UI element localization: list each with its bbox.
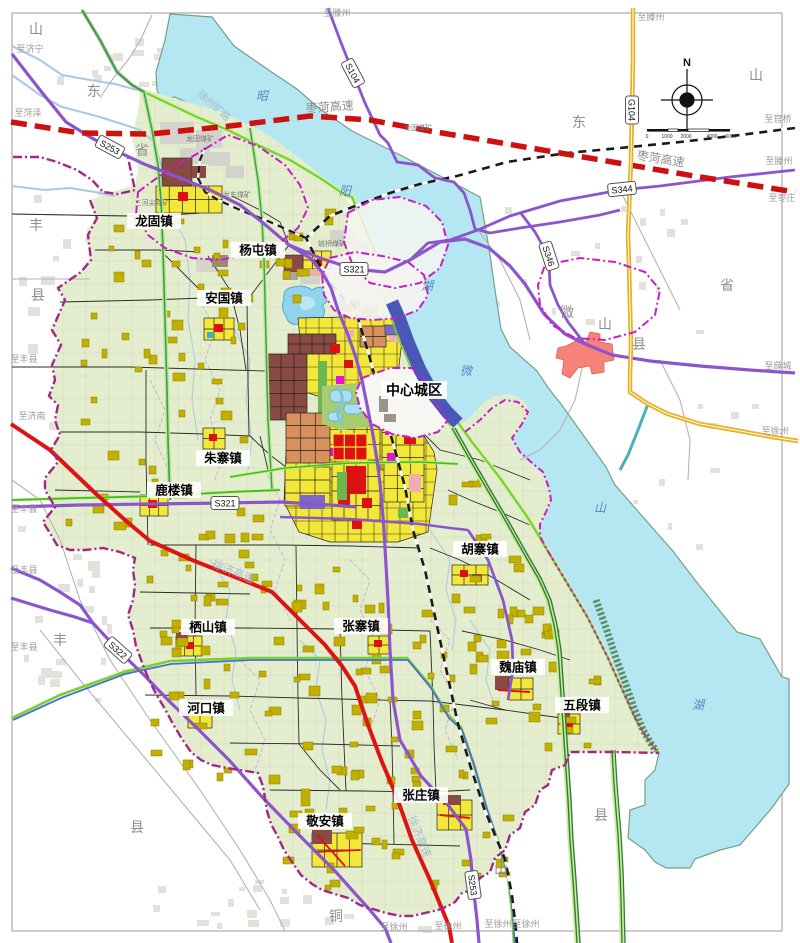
svg-text:杨屯镇: 杨屯镇 [239, 243, 277, 258]
svg-text:省: 省 [135, 142, 149, 158]
svg-text:龙固煤矿: 龙固煤矿 [404, 123, 432, 132]
svg-text:朱寨镇: 朱寨镇 [204, 451, 242, 466]
svg-text:县: 县 [632, 336, 646, 352]
svg-text:中心城区: 中心城区 [386, 382, 442, 398]
svg-text:G104: G104 [627, 99, 637, 121]
svg-text:胡寨镇: 胡寨镇 [461, 542, 499, 557]
svg-text:五段镇: 五段镇 [563, 698, 601, 713]
svg-text:丰: 丰 [29, 217, 43, 233]
svg-text:N: N [683, 57, 691, 69]
svg-text:微: 微 [460, 364, 474, 378]
svg-text:龙固镇: 龙固镇 [134, 214, 173, 229]
svg-text:安国镇: 安国镇 [205, 291, 243, 306]
svg-text:至薛城: 至薛城 [764, 360, 791, 371]
svg-text:栖山镇: 栖山镇 [189, 620, 227, 635]
svg-text:东: 东 [572, 114, 586, 130]
svg-text:鹿楼镇: 鹿楼镇 [155, 483, 193, 498]
svg-text:山: 山 [29, 21, 43, 37]
svg-text:1000: 1000 [661, 134, 672, 140]
svg-text:张庄镇: 张庄镇 [402, 788, 440, 803]
svg-text:山: 山 [749, 67, 763, 83]
svg-text:至济南: 至济南 [18, 410, 45, 421]
svg-text:姚桥煤矿: 姚桥煤矿 [318, 239, 346, 248]
svg-text:至官桥: 至官桥 [764, 113, 791, 124]
svg-text:6000: 6000 [725, 134, 736, 140]
svg-text:至徐州: 至徐州 [484, 918, 511, 929]
svg-text:至菏泽: 至菏泽 [14, 108, 41, 118]
svg-text:湖: 湖 [692, 698, 706, 712]
svg-text:山: 山 [598, 316, 612, 332]
svg-text:至徐州: 至徐州 [434, 920, 461, 931]
svg-text:县: 县 [594, 807, 608, 823]
svg-text:阳: 阳 [339, 184, 353, 198]
svg-text:龙固煤矿: 龙固煤矿 [186, 134, 214, 143]
svg-text:东: 东 [87, 83, 101, 99]
svg-text:省: 省 [720, 277, 734, 293]
svg-text:至徐州: 至徐州 [380, 921, 407, 932]
svg-text:河口镇: 河口镇 [187, 701, 225, 716]
svg-text:铜: 铜 [329, 908, 343, 924]
svg-text:S321: S321 [214, 499, 235, 509]
svg-text:山: 山 [494, 861, 508, 877]
svg-text:至济宁: 至济宁 [16, 43, 43, 54]
svg-text:至滕州: 至滕州 [323, 7, 350, 18]
svg-text:县: 县 [31, 287, 45, 303]
svg-text:微: 微 [560, 304, 574, 320]
svg-text:至滕州: 至滕州 [637, 11, 664, 22]
svg-text:丰: 丰 [53, 632, 67, 648]
svg-text:昭: 昭 [256, 89, 270, 103]
svg-text:S321: S321 [343, 265, 364, 275]
svg-text:龙东煤矿: 龙东煤矿 [223, 190, 251, 199]
svg-text:至徐州: 至徐州 [512, 918, 539, 929]
svg-text:县: 县 [130, 819, 144, 835]
svg-text:至枣庄: 至枣庄 [768, 192, 795, 203]
svg-text:至丰县: 至丰县 [10, 353, 37, 364]
svg-text:2000: 2000 [680, 134, 691, 140]
svg-text:至滕州: 至滕州 [765, 155, 792, 166]
svg-text:魏庙镇: 魏庙镇 [498, 660, 537, 675]
svg-text:4000: 4000 [706, 134, 717, 140]
svg-text:至徐州: 至徐州 [761, 425, 788, 436]
svg-text:0: 0 [646, 134, 649, 140]
svg-text:湖: 湖 [421, 279, 435, 293]
svg-text:张寨镇: 张寨镇 [342, 619, 380, 634]
svg-text:敬安镇: 敬安镇 [305, 814, 344, 829]
svg-text:三河尖煤矿: 三河尖煤矿 [135, 198, 170, 207]
svg-text:至丰县: 至丰县 [10, 641, 37, 652]
svg-text:山: 山 [594, 501, 607, 515]
svg-text:至丰县: 至丰县 [10, 503, 37, 514]
svg-text:至丰县: 至丰县 [10, 564, 37, 575]
